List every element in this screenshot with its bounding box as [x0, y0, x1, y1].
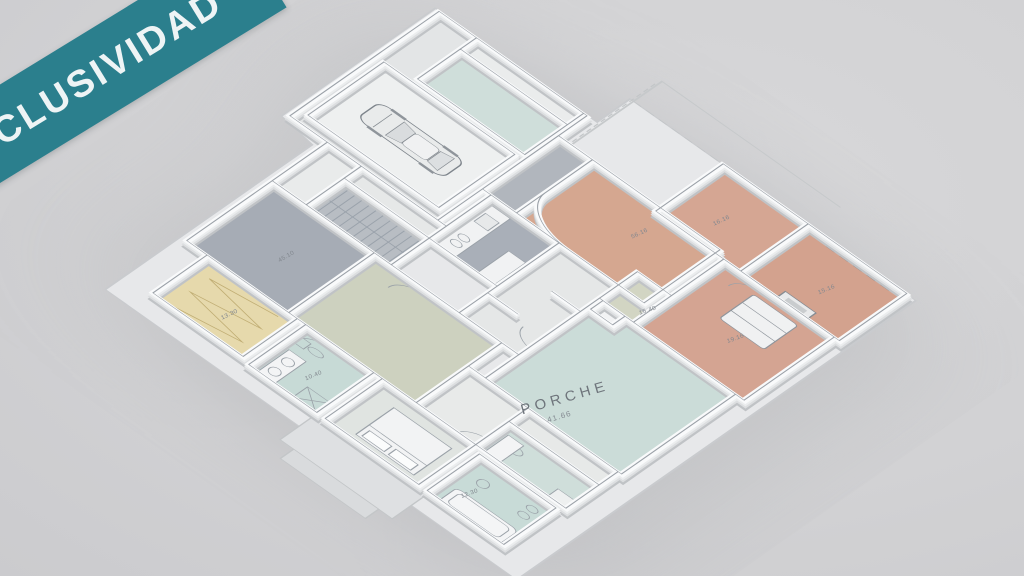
floorplan-render: 45.10 13.30 10.40 12.30 56.16 16.16 15.1… — [0, 0, 1024, 576]
